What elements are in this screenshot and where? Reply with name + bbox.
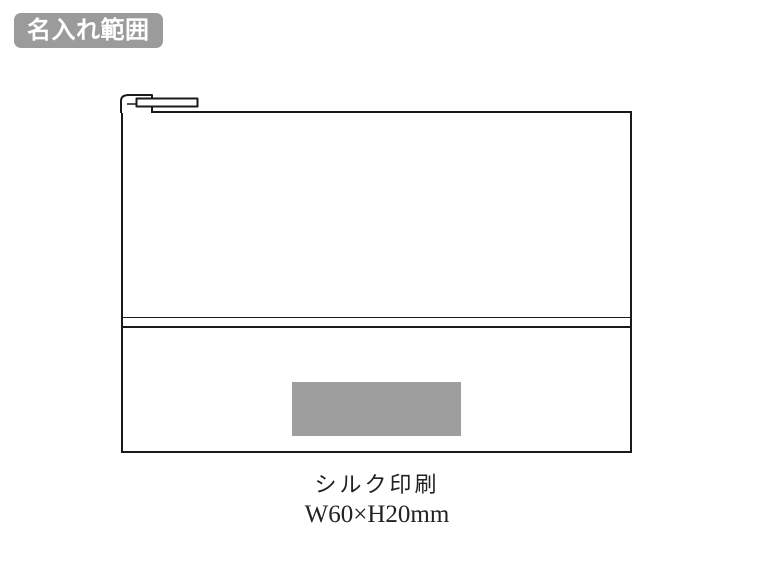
print-size-label: W60×H20mm [137, 500, 617, 530]
imprint-print-area [292, 382, 461, 436]
imprint-range-badge: 名入れ範囲 [14, 13, 163, 48]
print-method-label: シルク印刷 [137, 470, 617, 500]
imprint-range-badge-label: 名入れ範囲 [27, 17, 150, 44]
imprint-caption: シルク印刷 W60×H20mm [137, 470, 617, 530]
imprint-range-diagram: 名入れ範囲 シルク印刷 W60×H20mm [0, 0, 760, 570]
zipper-pull-icon [114, 87, 210, 115]
pouch-seam-line [123, 317, 630, 328]
zipper-pull-tab [137, 99, 198, 107]
pouch-outline [121, 111, 632, 453]
